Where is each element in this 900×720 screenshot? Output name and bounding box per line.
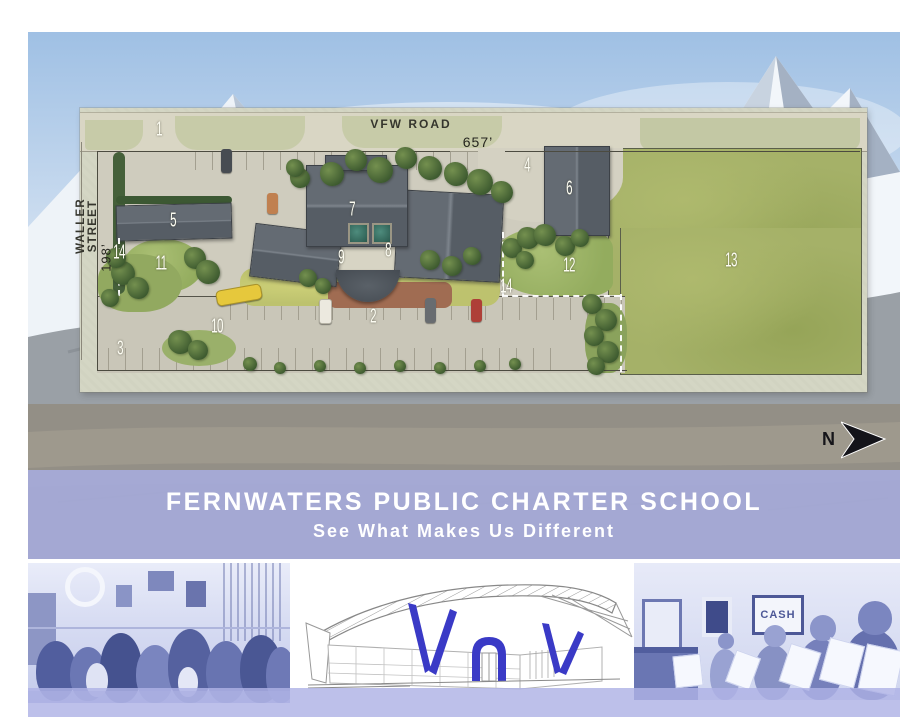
plan-marker-11: 11 [156,253,167,276]
bottom-strip [28,688,900,717]
plan-marker-12: 12 [563,255,575,278]
north-arrow: N [822,418,887,460]
plan-marker-9: 9 [338,247,344,270]
flyer-page: VFW ROAD 657’ WALLER STREET 198’ 1234567… [0,0,900,720]
plan-marker-1: 1 [156,119,162,142]
plan-marker-8: 8 [385,240,391,263]
school-subtitle: See What Makes Us Different [313,521,615,542]
plan-marker-5: 5 [170,210,176,233]
architectural-sketch [290,563,634,703]
plan-marker-13: 13 [725,250,737,273]
plan-marker-7: 7 [349,199,355,222]
plan-marker-14: 14 [113,242,125,265]
singer-figure [764,625,786,647]
plan-marker-10: 10 [211,316,223,339]
north-arrow-icon [841,418,887,460]
photo-building-sketch [290,563,634,703]
plan-marker-2: 2 [370,306,376,329]
wall-frame [116,585,132,607]
singer-figure [718,633,734,649]
photo-students-costumes [28,563,290,703]
school-title: FERNWATERS PUBLIC CHARTER SCHOOL [166,488,762,517]
photo-students-singing: CASH [634,563,900,700]
wall-frame [702,597,732,637]
singer-figure [858,601,892,635]
title-banner: FERNWATERS PUBLIC CHARTER SCHOOL See Wha… [28,470,900,559]
wall-frame [186,581,206,607]
plan-marker-4: 4 [524,155,530,178]
plan-marker-14: 14 [500,276,512,299]
plan-marker-3: 3 [117,338,123,361]
north-label: N [822,429,835,450]
cash-poster-text: CASH [760,609,795,621]
plan-marker-6: 6 [566,178,572,201]
wall-rail [28,627,290,629]
wreath-decoration [65,567,105,607]
streamer-decoration [223,563,285,641]
wall-frame [148,571,174,591]
sheet-music [672,654,703,689]
